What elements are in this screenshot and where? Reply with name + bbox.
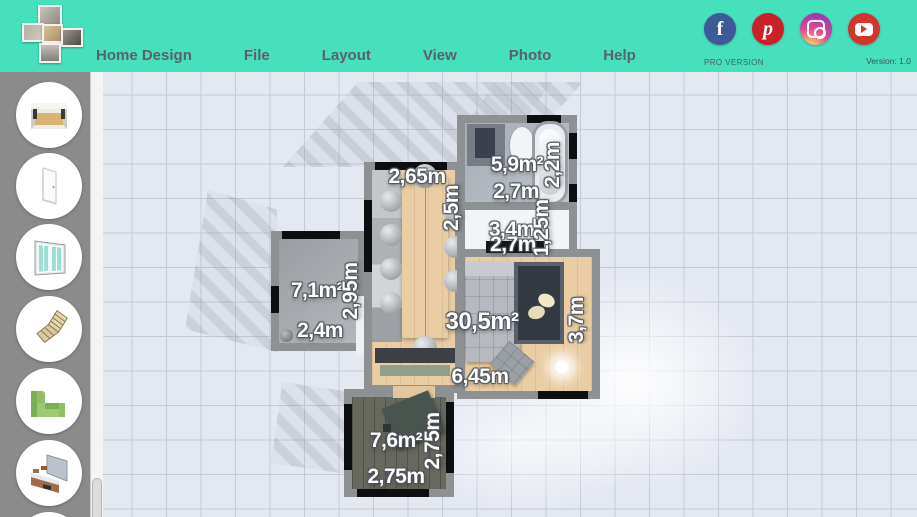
dining-chair[interactable]: [380, 224, 402, 246]
office-width-label: 2,4m: [297, 319, 343, 343]
scrollbar-thumb[interactable]: [92, 478, 102, 517]
logo-tile: [42, 24, 63, 43]
dining-rug[interactable]: [380, 365, 450, 376]
cast-shadow: [185, 190, 277, 352]
sofa-back: [465, 262, 520, 276]
logo-tile: [39, 43, 61, 63]
stairs-icon: [23, 303, 75, 355]
dining-chair[interactable]: [380, 258, 402, 280]
door-icon: [23, 160, 75, 212]
bathroom-depth-label: 2,2m: [541, 142, 565, 188]
tool-sidebar: [0, 72, 90, 517]
dining-chair[interactable]: [380, 292, 402, 314]
youtube-icon[interactable]: [848, 13, 880, 45]
office-depth-label: 2,95m: [339, 262, 363, 319]
laundry-width-label: 2,75m: [367, 465, 424, 489]
dining-chair[interactable]: [380, 190, 402, 212]
menu-photo[interactable]: Photo: [509, 47, 552, 64]
kitchen-icon: [23, 447, 75, 499]
hallway-depth-label: 1,25m: [530, 199, 554, 256]
top-menu-bar: Home Design File Layout View Photo Help …: [0, 0, 917, 72]
sidebar-scrollbar[interactable]: [90, 72, 103, 517]
menu-view[interactable]: View: [423, 47, 457, 64]
sofa-icon: [23, 375, 75, 427]
living-window: [538, 391, 588, 399]
laundry-area-label: 7,6m²: [370, 429, 422, 453]
kitchen-tool-button[interactable]: [16, 440, 82, 506]
dining-window: [364, 200, 372, 272]
logo-tile: [61, 28, 83, 47]
pinterest-icon[interactable]: p: [752, 13, 784, 45]
room-icon: [23, 89, 75, 141]
play-glyph: [861, 25, 867, 33]
app-logo[interactable]: [22, 3, 84, 67]
menu-layout[interactable]: Layout: [322, 47, 371, 64]
bathroom-area-label: 5,9m²: [491, 153, 543, 177]
menu-home-design[interactable]: Home Design: [96, 47, 192, 64]
dining-depth-label: 2,5m: [440, 185, 464, 231]
camera-glyph: [807, 20, 825, 38]
door-tool-button[interactable]: [16, 153, 82, 219]
sideboard[interactable]: [375, 348, 455, 363]
main-menu: Home Design File Layout View Photo Help: [96, 47, 636, 64]
stairs-tool-button[interactable]: [16, 296, 82, 362]
floor-lamp[interactable]: [553, 358, 571, 376]
home-design-app: Home Design File Layout View Photo Help …: [0, 0, 917, 517]
laundry-depth-label: 2,75m: [421, 412, 445, 469]
scroll-partial-tool-button[interactable]: [16, 512, 82, 517]
living-area-label: 30,5m²: [445, 308, 518, 336]
living-depth-label: 3,7m: [565, 297, 589, 343]
laundry-window: [344, 404, 352, 470]
cast-shadow: [271, 382, 347, 474]
window-icon: [23, 231, 75, 283]
dining-width-label: 2,65m: [388, 165, 445, 189]
window-tool-button[interactable]: [16, 224, 82, 290]
instagram-icon[interactable]: [800, 13, 832, 45]
laundry-window: [357, 489, 429, 497]
living-rug[interactable]: [514, 262, 564, 344]
room-tool-button[interactable]: [16, 82, 82, 148]
menu-help[interactable]: Help: [603, 47, 636, 64]
office-window: [271, 286, 279, 313]
living-width-label: 6,45m: [451, 365, 508, 389]
laundry-window: [446, 402, 454, 473]
version-label: Version: 1.0: [866, 56, 911, 66]
logo-tile: [22, 23, 44, 42]
facebook-icon[interactable]: f: [704, 13, 736, 45]
office-window: [282, 231, 340, 239]
social-links: f p: [704, 13, 880, 45]
bathroom-window: [569, 133, 577, 159]
pro-version-label: PRO VERSION: [702, 58, 766, 67]
office-door-knob: [280, 329, 293, 342]
sofa-tool-button[interactable]: [16, 368, 82, 434]
design-canvas[interactable]: 2,65m 2,5m 5,9m² 2,7m 2,2m 3,4m² 2,7m 1,…: [103, 72, 917, 517]
menu-file[interactable]: File: [244, 47, 270, 64]
office-area-label: 7,1m²: [291, 279, 343, 303]
